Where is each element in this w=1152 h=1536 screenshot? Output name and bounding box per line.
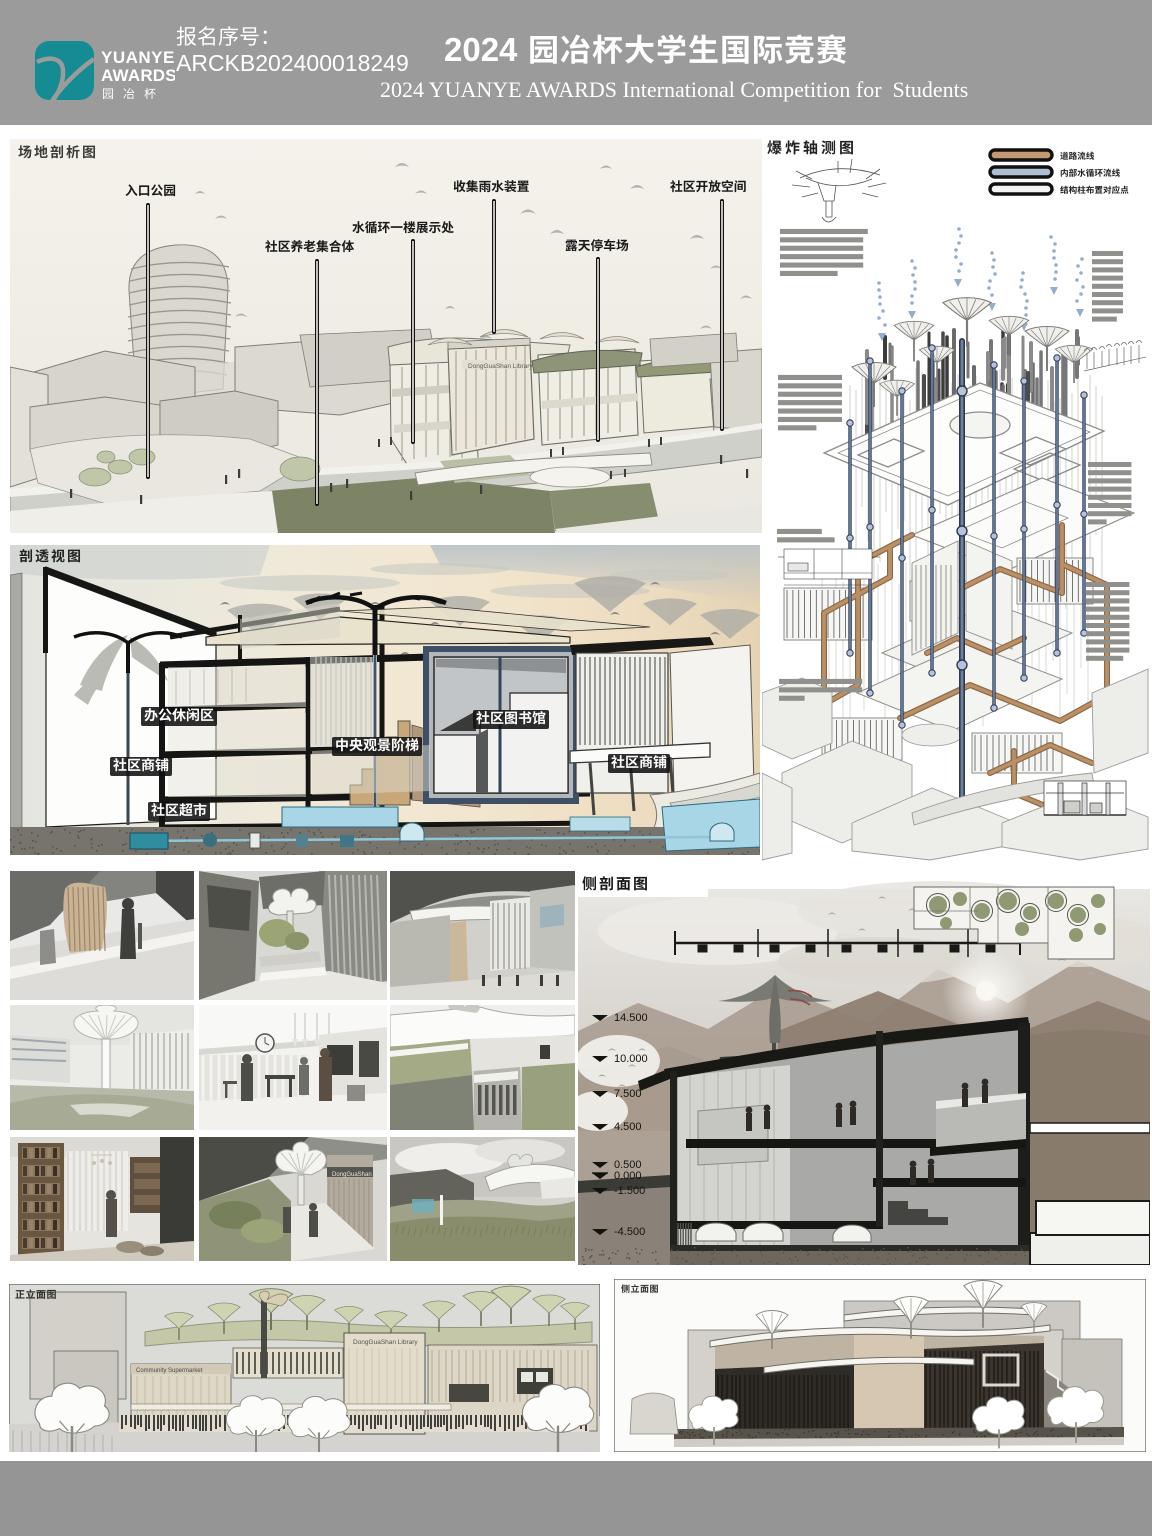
svg-text:4.500: 4.500 [614, 1121, 642, 1133]
svg-text:ARCKB202400018249: ARCKB202400018249 [176, 50, 409, 76]
svg-text:DongGuaShan Library: DongGuaShan Library [353, 1339, 418, 1346]
svg-text:-1.500: -1.500 [614, 1185, 645, 1197]
svg-text:Community Supermarket: Community Supermarket [136, 1368, 203, 1374]
svg-text:AWARDS: AWARDS [101, 66, 175, 85]
svg-text:-4.500: -4.500 [614, 1226, 645, 1238]
svg-text:YUANYE: YUANYE [101, 48, 175, 67]
svg-text:DongGuaShan: DongGuaShan [332, 1172, 372, 1178]
svg-text:7.500: 7.500 [614, 1088, 642, 1100]
svg-text:0.000: 0.000 [614, 1170, 642, 1182]
svg-text:10.000: 10.000 [614, 1053, 648, 1065]
svg-text:14.500: 14.500 [614, 1012, 648, 1024]
svg-text:2024: 2024 [444, 31, 518, 68]
svg-text:DongGuaShan Library: DongGuaShan Library [468, 363, 533, 370]
